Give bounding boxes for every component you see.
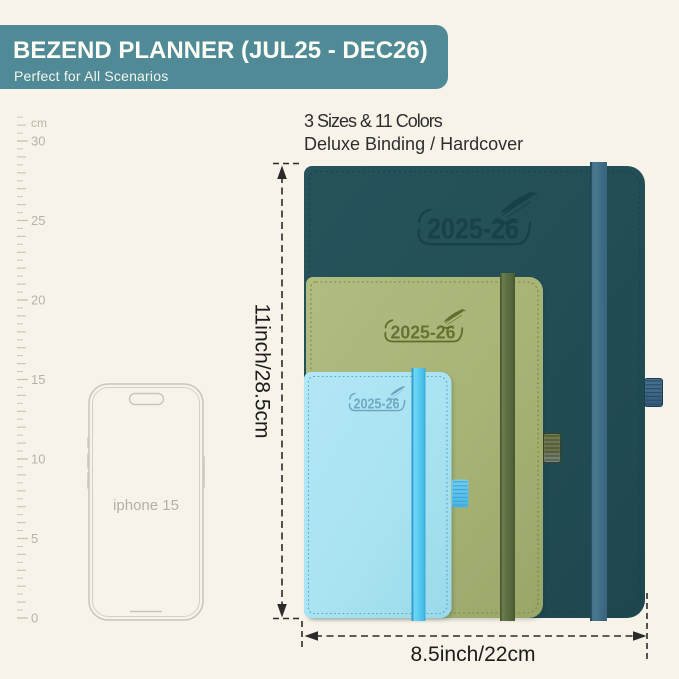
svg-text:10: 10 (31, 452, 45, 467)
svg-text:15: 15 (31, 372, 45, 387)
svg-text:2025-26: 2025-26 (427, 214, 519, 246)
svg-text:2025-26: 2025-26 (391, 323, 456, 343)
svg-text:cm: cm (31, 116, 47, 130)
svg-text:2025-26: 2025-26 (354, 396, 400, 413)
svg-text:iphone 15: iphone 15 (113, 497, 179, 514)
svg-text:30: 30 (31, 134, 45, 149)
svg-text:11inch/28.5cm: 11inch/28.5cm (250, 303, 273, 438)
svg-text:20: 20 (31, 293, 45, 308)
svg-text:25: 25 (31, 213, 45, 228)
svg-text:0: 0 (31, 611, 38, 626)
svg-text:5: 5 (31, 531, 38, 546)
svg-text:8.5inch/22cm: 8.5inch/22cm (411, 643, 536, 666)
